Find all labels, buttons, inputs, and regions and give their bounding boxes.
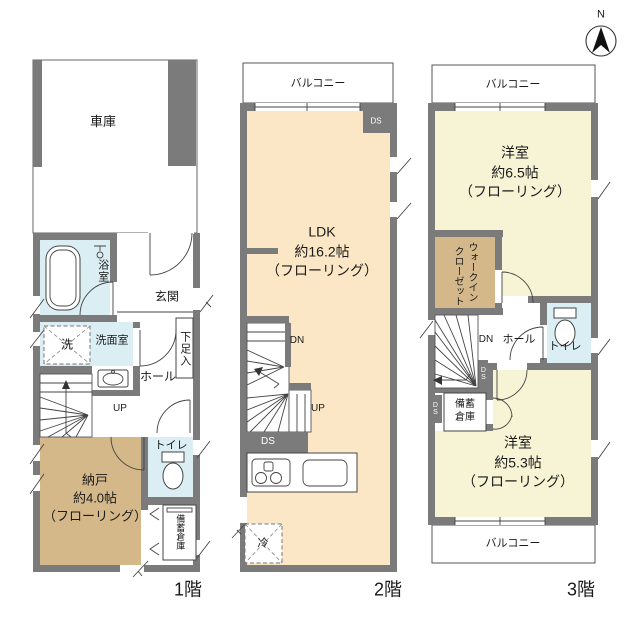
floorplan-drawing bbox=[0, 0, 640, 640]
balcony3-top-label: バルコニー bbox=[486, 77, 541, 92]
washbasin bbox=[98, 370, 128, 387]
washroom-label: 洗面室 bbox=[96, 333, 129, 348]
wic-label-col1: ウォークイン bbox=[464, 242, 478, 302]
floor3-label: 3階 bbox=[567, 577, 595, 602]
stock1-label: 備蓄倉庫 bbox=[174, 514, 187, 550]
storeroom-label: 納戸 約4.0帖 （フローリング） bbox=[43, 472, 147, 527]
shoe-box-label: 下足入 bbox=[176, 331, 191, 367]
garage-label: 車庫 bbox=[90, 113, 116, 131]
toilet1-fixture bbox=[162, 452, 184, 489]
bath-label: 浴室 bbox=[94, 259, 109, 283]
floor2-label: 2階 bbox=[374, 577, 402, 602]
stock3-label: 備蓄 倉庫 bbox=[455, 398, 475, 424]
wic-label-col2: クローゼット bbox=[450, 246, 464, 306]
washer-label: 洗 bbox=[61, 337, 73, 354]
ds-bottom-label: DS bbox=[261, 435, 275, 449]
entrance-label: 玄関 bbox=[155, 289, 179, 306]
floor1-label: 1階 bbox=[174, 577, 202, 602]
ds-top-label: DS bbox=[370, 115, 381, 126]
floorplan-canvas: N 車庫 浴室 玄関 洗 洗面室 下足入 ホール UP 納戸 約4.0帖 （フロ… bbox=[0, 0, 640, 640]
ds-b-label: DS bbox=[430, 402, 440, 416]
ds-a-label: DS bbox=[478, 367, 488, 381]
hall1-label: ホール bbox=[140, 369, 176, 386]
bedroom-65-label: 洋室 約6.5帖 （フローリング） bbox=[459, 144, 571, 203]
up2-label: UP bbox=[311, 402, 325, 416]
bedroom-53-label: 洋室 約5.3帖 （フローリング） bbox=[462, 434, 574, 493]
stairs-f3 bbox=[433, 315, 478, 388]
toilet1-label: トイレ bbox=[155, 438, 188, 453]
bathtub bbox=[46, 246, 80, 310]
garage-wall-block bbox=[168, 60, 196, 166]
toilet3-label: トイレ bbox=[549, 339, 582, 354]
balcony3-bottom-label: バルコニー bbox=[486, 536, 541, 551]
dn2-label: DN bbox=[290, 334, 304, 348]
compass-north-label: N bbox=[597, 7, 605, 22]
balcony2-label: バルコニー bbox=[291, 76, 346, 91]
compass-icon bbox=[586, 26, 616, 56]
ldk-label: LDK 約16.2帖 （フローリング） bbox=[266, 223, 378, 282]
stairs-f1 bbox=[40, 374, 92, 437]
dn3-label: DN bbox=[479, 333, 493, 347]
up1-label: UP bbox=[113, 402, 127, 416]
kitchen-counter bbox=[247, 453, 357, 492]
fridge-label: 冷 bbox=[258, 536, 269, 551]
hall3-label: ホール bbox=[503, 332, 536, 347]
floor2-plan bbox=[232, 63, 411, 572]
